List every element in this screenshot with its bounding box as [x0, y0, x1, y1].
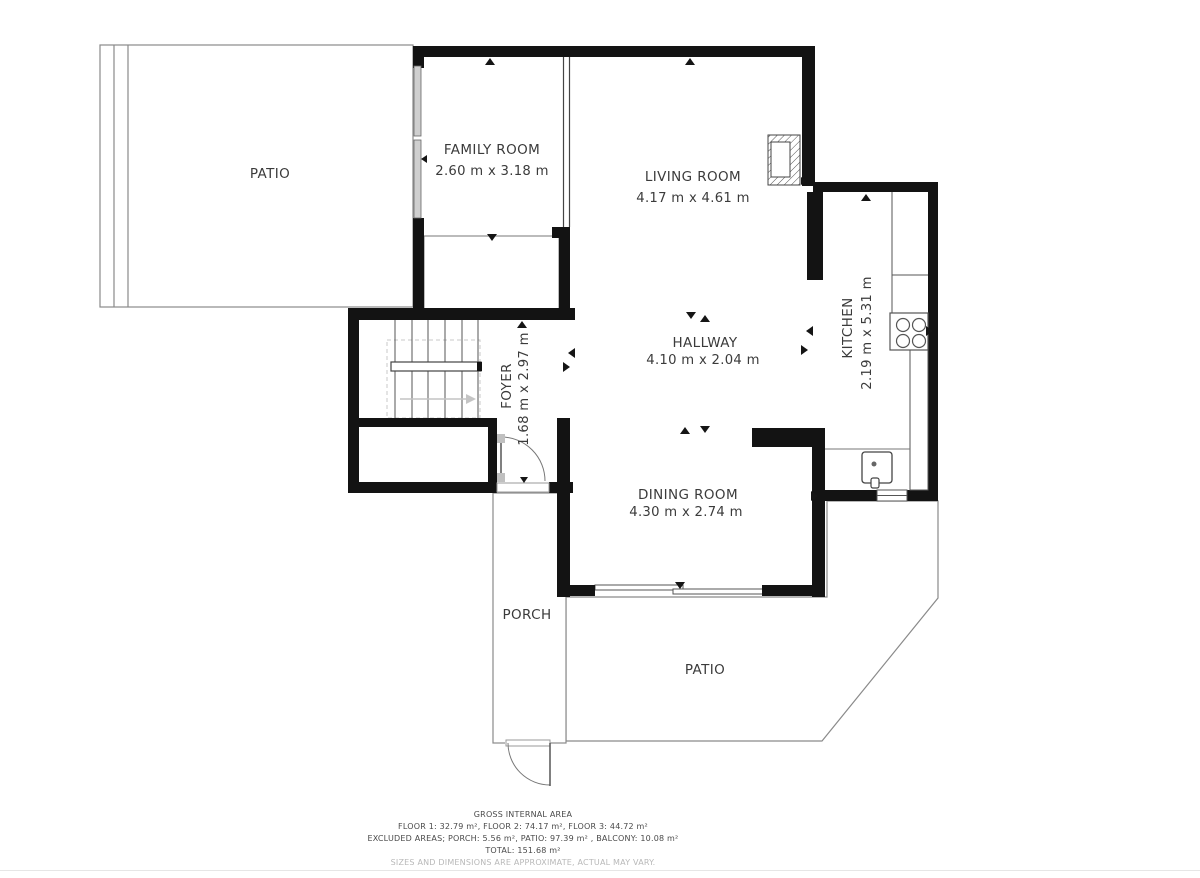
floor-plan-drawing: PATIO FAMILY ROOM 2.60 m x 3.18 m LIVING… — [0, 0, 1200, 878]
cooktop-icon — [890, 313, 928, 350]
stairs-up-arrow-head — [466, 394, 476, 404]
dining-room-label: DINING ROOM — [638, 487, 738, 503]
living-room-dimensions: 4.17 m x 4.61 m — [636, 191, 750, 206]
family-room-window — [414, 66, 421, 218]
stairs-handrail-end — [477, 362, 482, 371]
excluded-areas: EXCLUDED AREAS; PORCH: 5.56 m², PATIO: 9… — [0, 833, 1046, 845]
total-area: TOTAL: 151.68 m² — [0, 845, 1046, 857]
patio-bottom-outline — [566, 501, 938, 741]
stairs-handrail — [391, 362, 481, 371]
family-living-partition — [564, 57, 570, 227]
fireplace-icon — [768, 135, 800, 185]
patio-bottom-label: PATIO — [685, 662, 725, 678]
disclaimer: SIZES AND DIMENSIONS ARE APPROXIMATE, AC… — [0, 857, 1046, 869]
patio-top-label: PATIO — [250, 166, 290, 182]
page-bottom-divider — [0, 870, 1200, 871]
stairs — [387, 319, 482, 418]
floor-areas: FLOOR 1: 32.79 m², FLOOR 2: 74.17 m², FL… — [0, 821, 1046, 833]
family-room-dimensions: 2.60 m x 3.18 m — [435, 164, 549, 179]
porch-label: PORCH — [502, 607, 551, 623]
sink-icon — [862, 452, 892, 488]
porch-door — [508, 743, 550, 786]
kitchen-window — [877, 490, 907, 501]
area-summary: GROSS INTERNAL AREA FLOOR 1: 32.79 m², F… — [0, 809, 1046, 869]
stair-landing-room-outline — [424, 236, 559, 319]
porch-door-threshold — [506, 740, 550, 746]
floor-plan-page: PATIO FAMILY ROOM 2.60 m x 3.18 m LIVING… — [0, 0, 1200, 878]
hallway-dimensions: 4.10 m x 2.04 m — [646, 353, 760, 368]
gross-internal-area-title: GROSS INTERNAL AREA — [0, 809, 1046, 821]
kitchen-dimensions: 2.19 m x 5.31 m — [860, 276, 875, 390]
kitchen-label: KITCHEN — [840, 297, 856, 358]
family-room-label: FAMILY ROOM — [444, 142, 540, 158]
foyer-label: FOYER — [499, 363, 515, 409]
hallway-label: HALLWAY — [672, 335, 737, 351]
dining-room-dimensions: 4.30 m x 2.74 m — [629, 505, 743, 520]
living-room-label: LIVING ROOM — [645, 169, 741, 185]
foyer-dimensions: 1.68 m x 2.97 m — [517, 332, 532, 446]
